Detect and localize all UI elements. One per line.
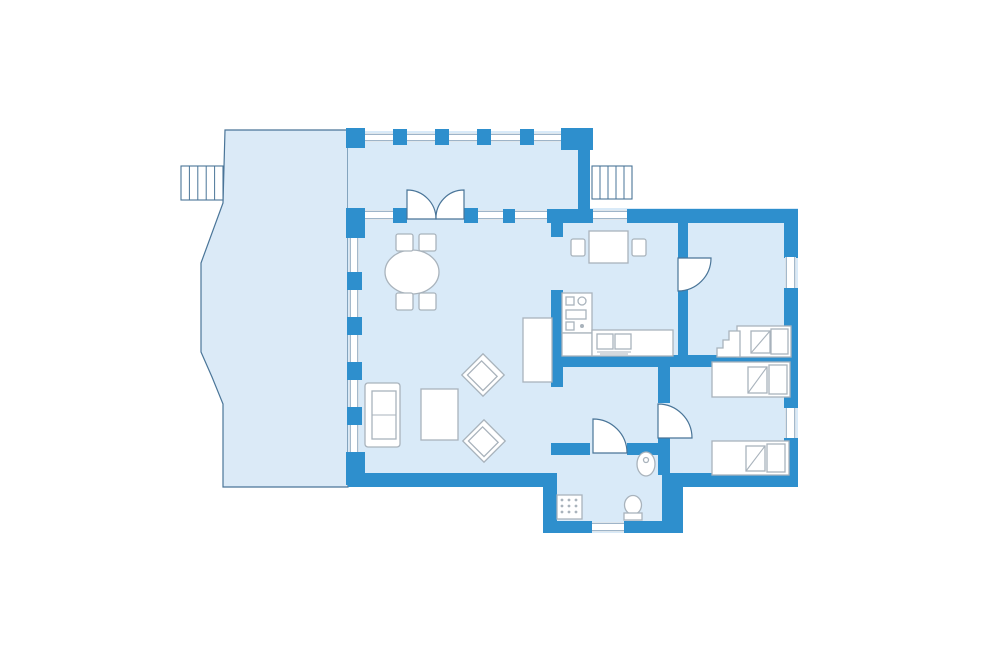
coffee-table [421, 389, 458, 440]
railing-post-3 [477, 129, 491, 145]
wall-bedroom1-west-lower [678, 290, 688, 356]
shower-dots [561, 499, 564, 502]
washbasin-drain [644, 458, 649, 463]
wall-bedroom1-west-upper [678, 222, 688, 258]
wall-bathroom-top-west [551, 443, 590, 455]
stove-dot [580, 324, 584, 328]
wall-annex-right [662, 473, 683, 533]
wall-veranda-right [578, 148, 590, 210]
wall-top-west-block [547, 209, 593, 223]
sink-basin-1 [597, 334, 613, 349]
shower-dots [575, 511, 578, 514]
shower-dots [568, 499, 571, 502]
toilet-tank [624, 513, 642, 520]
veranda-floor [348, 131, 590, 212]
stove-burner-square [566, 297, 574, 305]
railing-post-4 [520, 129, 534, 145]
shower-dots [575, 499, 578, 502]
window-wall-post-4 [347, 407, 362, 425]
bed-1-pillow [769, 365, 787, 394]
wall-hall-east-lower [658, 437, 670, 475]
railing-post-2 [435, 129, 449, 145]
shower-dots [575, 505, 578, 508]
bunk-bed-pillow [771, 329, 788, 354]
kitchen-base-cabinet [562, 333, 592, 356]
wall-annex-bottom-west [543, 521, 592, 533]
sideboard [523, 318, 552, 382]
nook-chair-left [571, 239, 585, 256]
veranda-corner-post-nw [346, 128, 365, 148]
dining-table [385, 250, 439, 294]
shower-dots [568, 505, 571, 508]
wall-top-east [627, 209, 797, 223]
french-door-post-left [393, 208, 407, 223]
window-wall-post-2 [347, 317, 362, 335]
top-wall-mid-post [503, 209, 515, 223]
shower-dots [561, 511, 564, 514]
window-wall-corner-top [346, 208, 365, 238]
toilet-bowl [625, 496, 642, 515]
wall-hall-east-upper [658, 365, 670, 403]
stove-square-2 [566, 322, 574, 330]
wall-right-upper [784, 209, 798, 258]
stove-burner-circle [578, 297, 586, 305]
wall-kitchen-west [551, 290, 563, 387]
dining-chair-3 [396, 293, 413, 310]
floor-plan-image [0, 0, 1000, 666]
railing-post-1 [393, 129, 407, 145]
dining-chair-2 [419, 234, 436, 251]
shower-dots [561, 505, 564, 508]
dining-chair-4 [419, 293, 436, 310]
nook-chair-right [632, 239, 646, 256]
window-wall-post-3 [347, 362, 362, 380]
sink-basin-2 [615, 334, 631, 349]
french-door-post-right [464, 208, 478, 223]
shower-dots [568, 511, 571, 514]
stove-oven [566, 310, 586, 319]
bed-2-pillow [767, 444, 785, 472]
wall-bottom-west [348, 473, 557, 487]
dining-chair-1 [396, 234, 413, 251]
terrace-stairs [181, 166, 223, 200]
washbasin [637, 452, 655, 476]
window-wall-corner-bottom [346, 452, 365, 485]
floor-plan-svg [0, 0, 1000, 666]
window-wall-post-1 [347, 272, 362, 290]
wall-kitchen-west-stub [551, 222, 563, 237]
veranda-corner-block-ne [561, 128, 593, 150]
entry-stairs [592, 166, 632, 199]
nook-table [589, 231, 628, 263]
